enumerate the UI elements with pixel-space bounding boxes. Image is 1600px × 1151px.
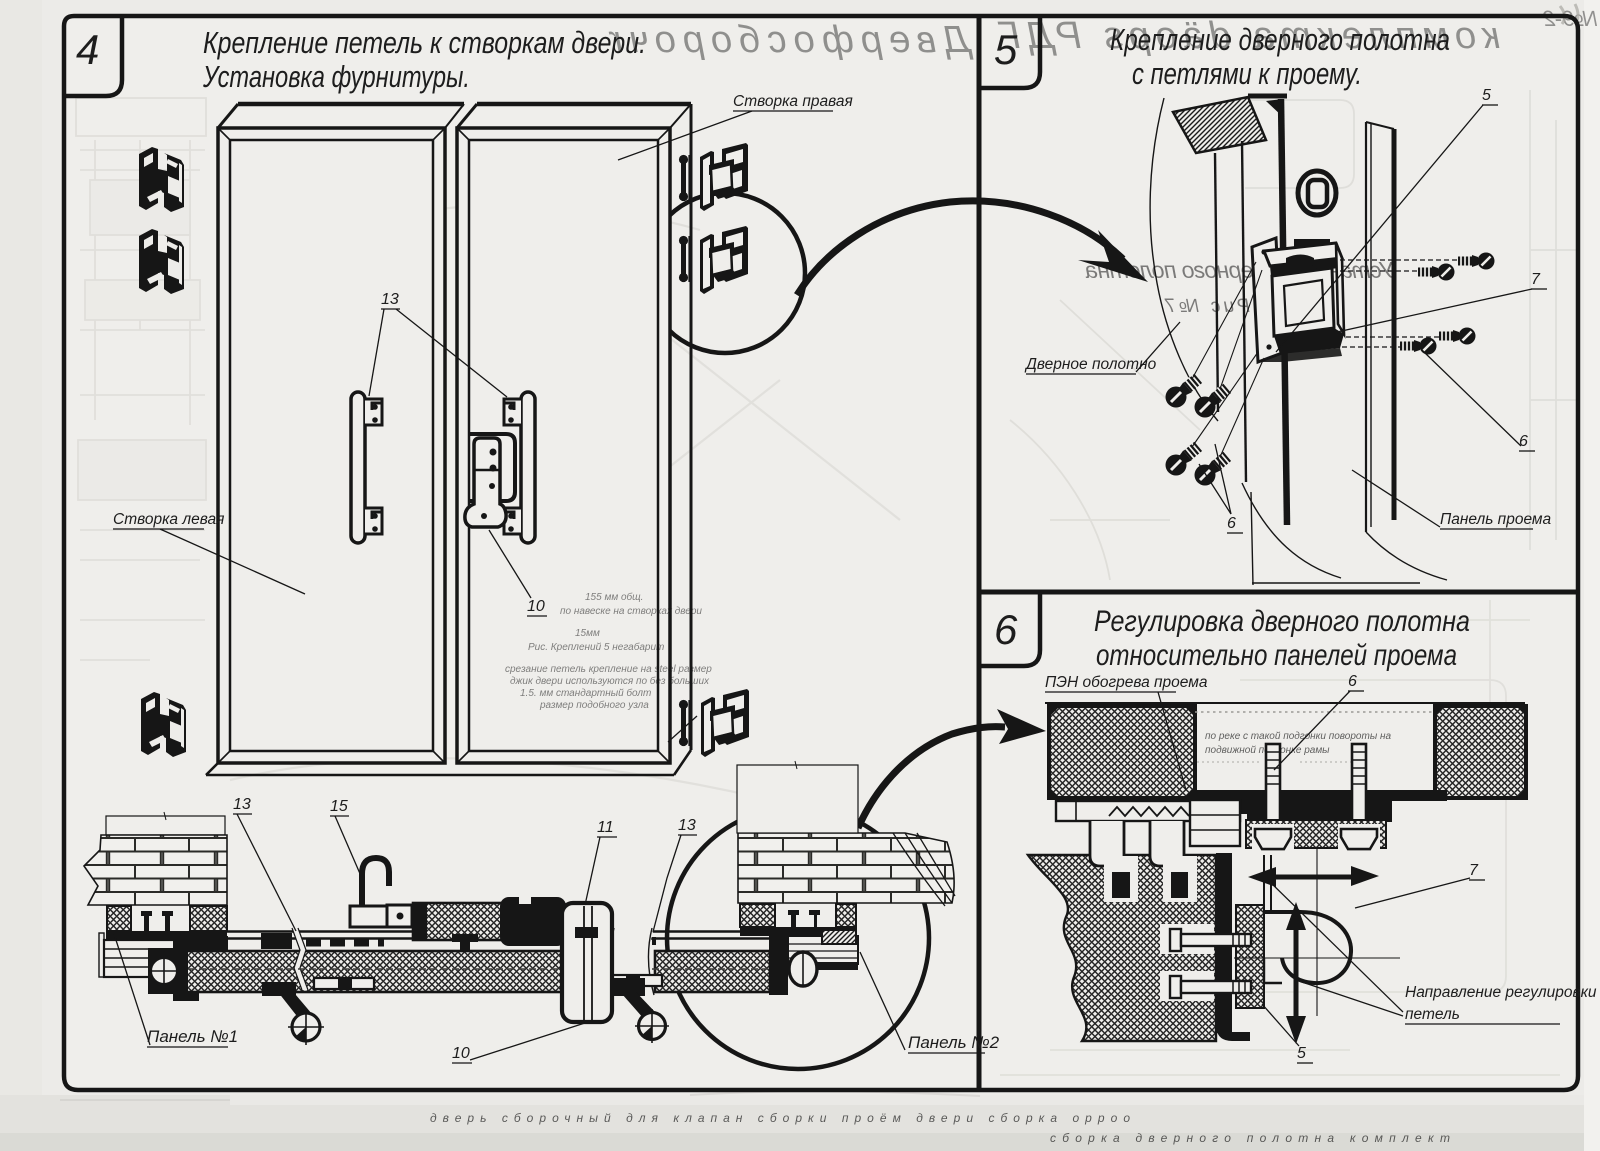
svg-text:15мм: 15мм [575,628,600,639]
svg-text:7: 7 [1469,862,1479,879]
svg-text:15: 15 [330,798,348,815]
svg-text:Створка правая: Створка правая [733,93,853,110]
svg-text:13: 13 [381,291,399,308]
svg-text:10: 10 [452,1045,470,1062]
svg-text:Крепление петель к створкам дв: Крепление петель к створкам двери. [203,25,646,60]
svg-text:по реке с такой подгонки повор: по реке с такой подгонки повороты на [1205,731,1391,742]
svg-text:5: 5 [1297,1045,1306,1062]
svg-text:7: 7 [1531,271,1541,288]
svg-text:Панель №2: Панель №2 [908,1033,1000,1052]
svg-text:Панель проема: Панель проема [1440,511,1552,528]
svg-text:петель: петель [1405,1006,1460,1023]
svg-text:6: 6 [994,606,1018,653]
svg-text:1.5. мм стандартный болт: 1.5. мм стандартный болт [520,687,651,699]
svg-text:относительно панелей проема: относительно панелей проема [1096,639,1457,672]
svg-text:Установка фурнитуры.: Установка фурнитуры. [202,59,470,94]
svg-text:6: 6 [1348,673,1357,690]
svg-text:155 мм общ.: 155 мм общ. [585,591,643,603]
svg-text:Рис. Креплений 5 негабарит: Рис. Креплений 5 негабарит [528,641,664,653]
svg-text:с петлями к проему.: с петлями к проему. [1132,56,1362,91]
svg-text:5: 5 [994,26,1018,73]
svg-text:ПЭН обогрева проема: ПЭН обогрева проема [1045,674,1208,691]
svg-text:Крепление дверного полотна: Крепление дверного полотна [1110,22,1450,57]
svg-text:13: 13 [233,796,251,813]
svg-text:13: 13 [678,817,696,834]
svg-text:Направление регулировки: Направление регулировки [1405,984,1597,1001]
svg-text:5: 5 [1482,87,1491,104]
svg-text:Створка левая: Створка левая [113,511,224,528]
svg-text:11: 11 [597,819,614,836]
svg-text:Панель №1: Панель №1 [147,1027,238,1046]
svg-text:размер подобного узла: размер подобного узла [539,699,649,711]
svg-text:6: 6 [1227,515,1236,532]
svg-text:срезание петель крепление на s: срезание петель крепление на steel разме… [505,664,712,675]
svg-text:Регулировка дверного полотна: Регулировка дверного полотна [1094,605,1470,638]
svg-text:10: 10 [527,598,545,615]
svg-text:джик двери используются по б: джик двери используются по без больших [510,675,710,687]
svg-text:4: 4 [76,26,99,73]
svg-text:6: 6 [1519,433,1528,450]
svg-text:по навеске на створках двери: по навеске на створках двери [560,606,702,617]
